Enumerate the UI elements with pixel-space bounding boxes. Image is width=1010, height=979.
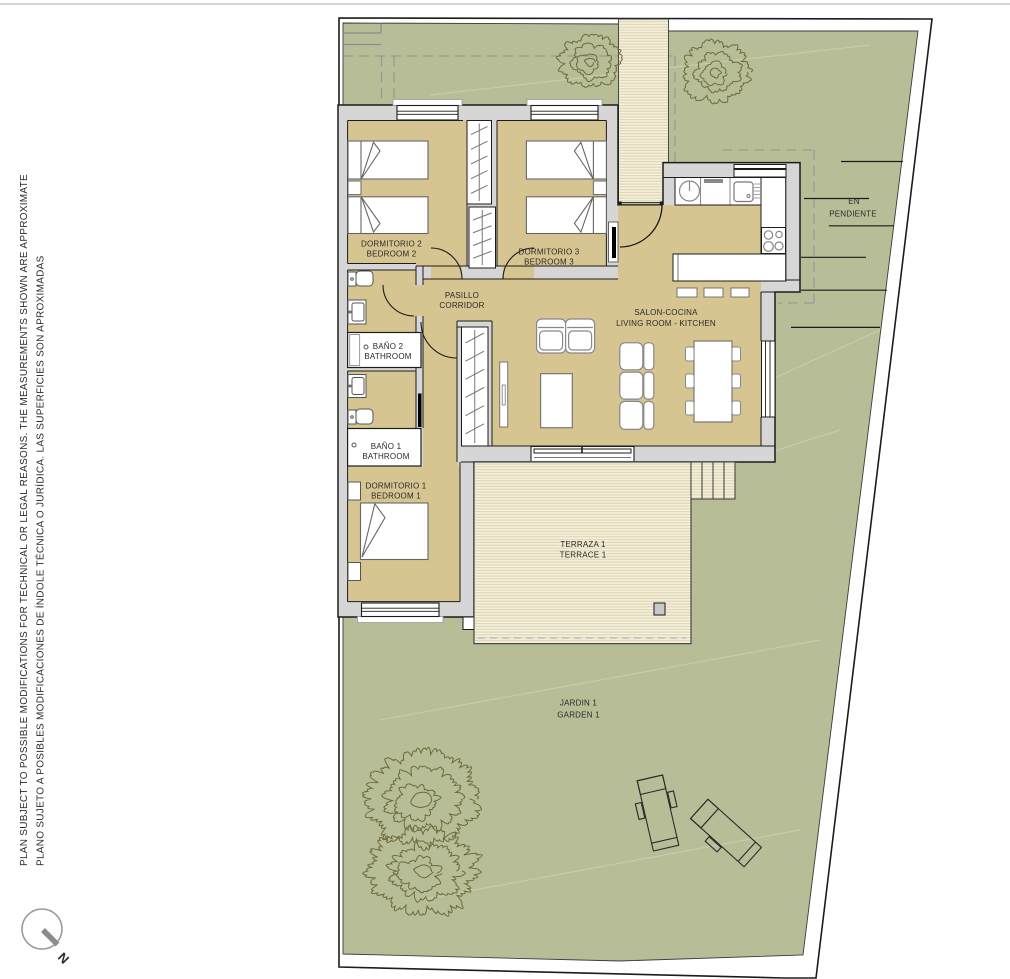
svg-text:TERRAZA 1: TERRAZA 1 <box>560 540 606 549</box>
svg-text:GARDEN 1: GARDEN 1 <box>557 711 600 720</box>
svg-text:CORRIDOR: CORRIDOR <box>439 301 484 310</box>
svg-text:DORMITORIO 3: DORMITORIO 3 <box>519 248 580 257</box>
svg-text:BATHROOM: BATHROOM <box>362 452 409 461</box>
svg-text:BATHROOM: BATHROOM <box>364 352 411 361</box>
svg-text:PLAN SUBJECT TO POSSIBLE MODIF: PLAN SUBJECT TO POSSIBLE MODIFICATIONS F… <box>19 174 30 866</box>
svg-text:TERRACE 1: TERRACE 1 <box>560 551 607 560</box>
svg-text:PASILLO: PASILLO <box>445 291 479 300</box>
svg-text:SALON-COCINA: SALON-COCINA <box>634 308 698 317</box>
svg-text:EN: EN <box>848 197 860 206</box>
svg-text:BEDROOM 1: BEDROOM 1 <box>371 492 421 501</box>
svg-text:DORMITORIO 1: DORMITORIO 1 <box>366 482 427 491</box>
svg-text:JARDIN 1: JARDIN 1 <box>560 699 598 708</box>
svg-text:BAÑO 2: BAÑO 2 <box>373 342 404 351</box>
svg-text:BEDROOM 3: BEDROOM 3 <box>524 258 574 267</box>
svg-text:BAÑO 1: BAÑO 1 <box>371 442 402 451</box>
svg-text:BEDROOM 2: BEDROOM 2 <box>367 250 417 259</box>
svg-text:PENDIENTE: PENDIENTE <box>829 210 877 219</box>
svg-text:DORMITORIO 2: DORMITORIO 2 <box>361 240 422 249</box>
svg-text:LIVING ROOM - KITCHEN: LIVING ROOM - KITCHEN <box>616 319 716 328</box>
svg-text:PLANO SUJETO A POSIBLES MODIFI: PLANO SUJETO A POSIBLES MODIFICACIONES D… <box>34 255 47 866</box>
